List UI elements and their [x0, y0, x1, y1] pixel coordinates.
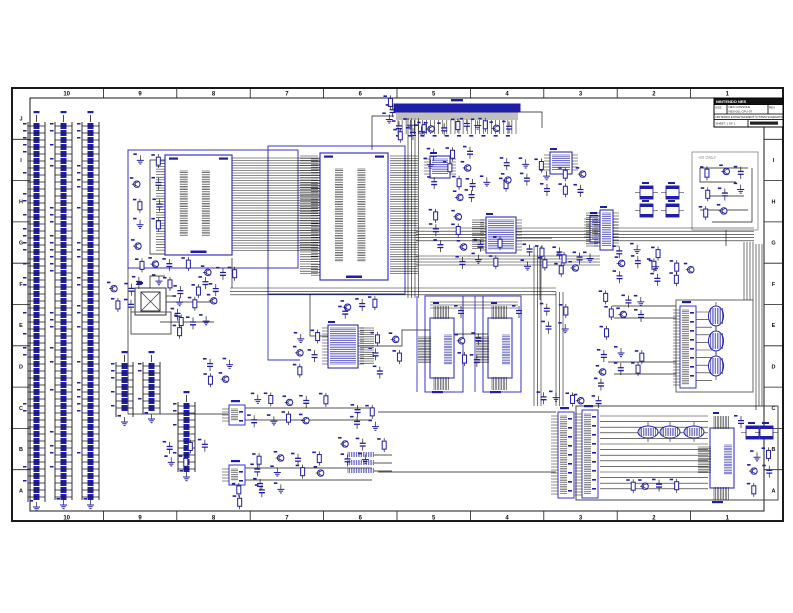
svg-text:SHEET 1 OF 1: SHEET 1 OF 1: [716, 121, 736, 125]
svg-text:A: A: [19, 488, 23, 494]
svg-text:10: 10: [63, 516, 70, 522]
svg-text:NES-001 CPU-07: NES-001 CPU-07: [729, 110, 753, 114]
svg-text:-60 ONLY: -60 ONLY: [698, 155, 717, 160]
schematic-page: 1010998877665544332211JJIIHHGGFFEEDDCCBB…: [0, 0, 793, 613]
svg-text:G: G: [771, 241, 775, 247]
svg-text:C: C: [19, 406, 23, 412]
svg-text:J: J: [19, 117, 22, 123]
svg-text:C: C: [772, 406, 776, 412]
svg-text:NINTENDO ENTERTAINMENT SYSTEM: NINTENDO ENTERTAINMENT SYSTEM SCHEMATIC: [716, 115, 784, 119]
svg-text:A: A: [772, 488, 776, 494]
svg-text:10: 10: [63, 92, 70, 98]
svg-text:D: D: [772, 364, 776, 370]
title-block: NINTENDO NESSIZENES CONSOLENES-001 CPU-0…: [714, 98, 784, 127]
svg-text:NES CONSOLE: NES CONSOLE: [729, 105, 751, 109]
svg-text:H: H: [19, 199, 23, 205]
svg-text:D: D: [19, 364, 23, 370]
svg-text:E: E: [19, 323, 23, 329]
svg-text:H: H: [772, 199, 776, 205]
svg-text:B: B: [19, 447, 23, 453]
note-label: -60 ONLY: [698, 155, 717, 160]
svg-text:G: G: [19, 241, 23, 247]
schematic-sheet: 1010998877665544332211JJIIHHGGFFEEDDCCBB…: [0, 0, 793, 613]
svg-text:NINTENDO NES: NINTENDO NES: [716, 99, 747, 104]
svg-text:REV: REV: [769, 106, 775, 110]
svg-text:B: B: [772, 447, 776, 453]
svg-text:SIZE: SIZE: [715, 106, 722, 110]
svg-text:E: E: [772, 323, 776, 329]
ic-cpu: [156, 155, 232, 255]
